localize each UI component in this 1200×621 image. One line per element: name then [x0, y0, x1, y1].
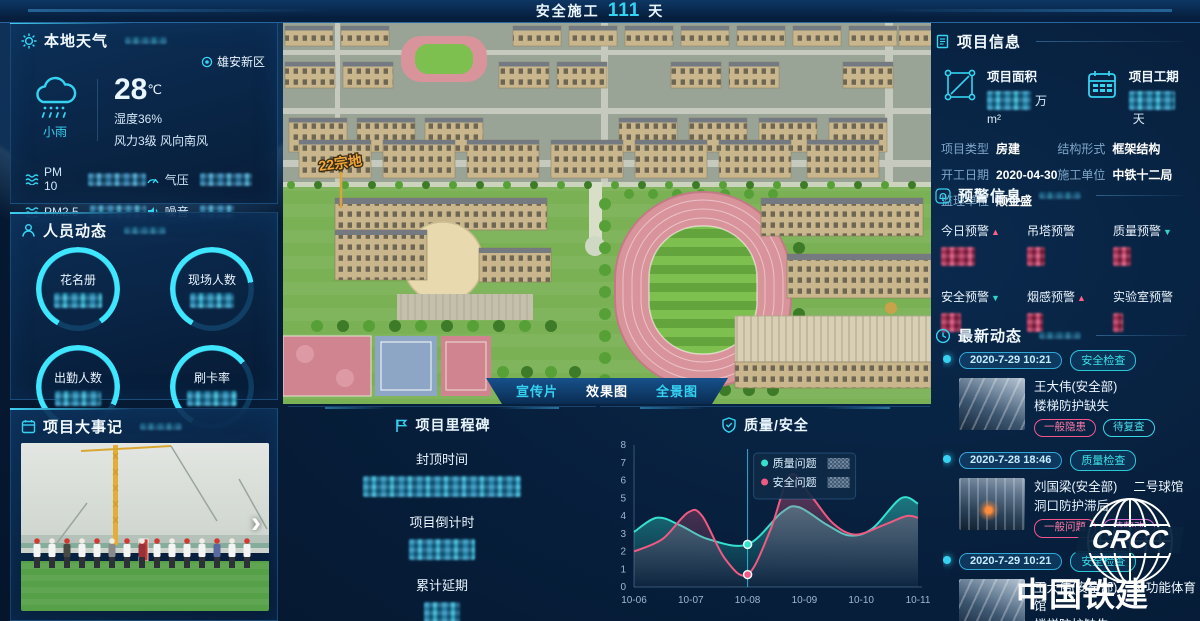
activity-photo[interactable]: [959, 478, 1025, 530]
header-decoration: [124, 227, 166, 234]
activity-title: 最新动态: [958, 325, 1022, 346]
activity-item[interactable]: 2020-7-28 18:46 质量检查 刘国梁(安全部)二号球馆 洞口防护滞后…: [943, 450, 1197, 537]
flag-icon: [394, 418, 409, 433]
svg-text:10-10: 10-10: [848, 595, 874, 606]
activity-time: 2020-7-28 18:46: [959, 452, 1062, 469]
milestone-items: 封顶时间 项目倒计时 累计延期: [288, 449, 596, 621]
site-3d-view: 22宗地 宣传片 效果图 全景图: [283, 22, 931, 404]
svg-text:1: 1: [620, 564, 626, 575]
header-decoration: [1039, 332, 1081, 339]
project-info-panel: 项目信息 项目面积 万m² 项目工期 天: [935, 24, 1193, 176]
timeline-dot: [943, 455, 951, 463]
carousel-next-button[interactable]: ›: [251, 513, 261, 533]
issue-status-badge: 待复查: [1103, 419, 1155, 438]
issue-status-badge: 待整改: [1103, 519, 1155, 538]
svg-text:2: 2: [620, 547, 626, 558]
header-days-count: 111: [608, 0, 641, 22]
svg-text:5: 5: [620, 493, 626, 504]
censored-value: [54, 293, 102, 308]
location-pin-icon: [201, 56, 213, 68]
weather-condition: 小雨: [43, 123, 67, 140]
activity-type-badge: 安全检查: [1070, 551, 1136, 572]
stat-area: 项目面积 万m²: [941, 66, 1057, 128]
svg-text:10-11: 10-11: [906, 595, 930, 606]
quality-safety-panel: 质量/安全 01234567810-0610-0710-0810-0910-10…: [600, 406, 930, 621]
censored-value: [987, 91, 1031, 110]
shield-check-icon: [721, 417, 737, 433]
svg-text:10-06: 10-06: [621, 595, 647, 606]
header-title-prefix: 安全施工: [536, 1, 600, 21]
personnel-title: 人员动态: [43, 220, 107, 241]
censored-value: [1113, 247, 1131, 266]
humidity: 湿度36%: [114, 110, 208, 127]
svg-text:7: 7: [620, 458, 626, 469]
weather-current: 小雨 28℃ 湿度36% 风力3级 风向南风: [29, 75, 208, 149]
warning-quality: 质量预警▼: [1113, 222, 1199, 266]
warnings-panel: 预警信息 今日预警▲ 吊塔预警 质量预警▼ 安全预警▼ 烟感预警▲ 实验室预警: [935, 178, 1193, 314]
svg-text:4: 4: [620, 511, 626, 522]
censored-value: [1129, 91, 1175, 110]
metric-label: PM 10: [44, 165, 77, 193]
censored-value: [187, 391, 237, 406]
view-button-panorama[interactable]: 全景图: [656, 381, 698, 400]
issue-level-badge: 一般隐患: [1034, 419, 1096, 438]
warnings-grid: 今日预警▲ 吊塔预警 质量预警▼ 安全预警▼ 烟感预警▲ 实验室预警: [935, 210, 1193, 332]
censored-value: [1027, 247, 1045, 266]
activity-time: 2020-7-29 10:21: [959, 553, 1062, 570]
censored-value: [409, 539, 475, 560]
censored-value: [55, 391, 101, 406]
events-photo[interactable]: [21, 443, 269, 611]
svg-text:8: 8: [620, 440, 626, 451]
dashboard-root: 安全施工 111 天 本地天气 雄安新区: [0, 0, 1200, 621]
person-icon: [21, 223, 36, 238]
events-panel: 项目大事记: [10, 408, 278, 621]
activity-type-badge: 安全检查: [1070, 350, 1136, 371]
activity-list: 2020-7-29 10:21 安全检查 王大伟(安全部) 楼梯防护缺失 一般隐…: [943, 350, 1197, 621]
ring-roster: 花名册: [36, 247, 120, 331]
censored-value: [200, 173, 252, 186]
svg-text:0: 0: [620, 582, 626, 593]
weather-location: 雄安新区: [201, 53, 265, 70]
bell-icon: [935, 188, 951, 204]
timeline-dot: [943, 556, 951, 564]
gear-icon: [21, 33, 37, 49]
issue-level-badge: 一般问题: [1034, 519, 1096, 538]
area-icon: [941, 66, 979, 104]
rain-cloud-icon: [29, 75, 81, 121]
warning-today: 今日预警▲: [941, 222, 1027, 266]
warning-crane: 吊塔预警: [1027, 222, 1113, 266]
weather-panel: 本地天气 雄安新区 小雨 28℃: [10, 22, 278, 204]
project-stats: 项目面积 万m² 项目工期 天: [935, 56, 1193, 130]
chart-title: 质量/安全: [744, 415, 809, 435]
header-decoration: [125, 37, 167, 44]
calendar-icon: [21, 419, 36, 434]
svg-text:3: 3: [620, 529, 626, 540]
top-header: 安全施工 111 天: [0, 0, 1200, 23]
view-button-render[interactable]: 效果图: [586, 381, 628, 400]
svg-text:10-09: 10-09: [792, 595, 818, 606]
activity-photo[interactable]: [959, 579, 1025, 621]
censored-value: [88, 173, 146, 186]
calendar-icon: [1083, 66, 1121, 104]
activity-item[interactable]: 2020-7-29 10:21 安全检查 王大伟(安全部)多功能体育馆 楼梯防护…: [943, 551, 1197, 621]
censored-value: [424, 602, 460, 621]
timeline-dot: [943, 355, 951, 363]
personnel-rings: 花名册 现场人数 出勤人数 刷卡率: [11, 247, 279, 429]
svg-text:质量问题: 质量问题: [773, 457, 817, 470]
weather-title: 本地天气: [44, 30, 108, 51]
quality-safety-chart[interactable]: 01234567810-0610-0710-0810-0910-1010-11质…: [600, 435, 930, 620]
censored-value: [941, 247, 975, 266]
stat-duration: 项目工期 天: [1083, 66, 1187, 128]
divider: [97, 79, 98, 141]
ring-onsite: 现场人数: [170, 247, 254, 331]
activity-item[interactable]: 2020-7-29 10:21 安全检查 王大伟(安全部) 楼梯防护缺失 一般隐…: [943, 350, 1197, 437]
milestone-panel: 项目里程碑 封顶时间 项目倒计时 累计延期: [288, 406, 596, 621]
activity-panel: 最新动态 2020-7-29 10:21 安全检查 王大伟(安全部) 楼梯防护缺…: [935, 318, 1197, 621]
svg-text:10-08: 10-08: [735, 595, 761, 606]
field-project-type: 项目类型房建: [941, 140, 1057, 157]
censored-value: [190, 293, 234, 308]
activity-photo[interactable]: [959, 378, 1025, 430]
view-button-promo[interactable]: 宣传片: [516, 381, 558, 400]
wind: 风力3级 风向南风: [114, 132, 208, 149]
pressure-gauge-icon: [146, 173, 160, 185]
milestone-title: 项目里程碑: [416, 415, 491, 435]
field-structure: 结构形式框架结构: [1057, 140, 1187, 157]
censored-value: [363, 476, 521, 497]
warnings-title: 预警信息: [958, 185, 1022, 206]
metric-label: 气压: [165, 171, 189, 188]
activity-type-badge: 质量检查: [1070, 450, 1136, 471]
pm10-mist-icon: [25, 173, 39, 185]
header-decoration: [1039, 192, 1081, 199]
milestone-delay: 累计延期: [416, 575, 468, 621]
clock-icon: [935, 328, 951, 344]
svg-text:10-07: 10-07: [678, 595, 704, 606]
events-title: 项目大事记: [43, 416, 123, 437]
personnel-panel: 人员动态 花名册 现场人数 出勤人数 刷卡率: [10, 212, 278, 400]
header-title-suffix: 天: [648, 1, 664, 21]
header-decoration: [140, 423, 182, 430]
milestone-countdown: 项目倒计时: [409, 512, 475, 560]
svg-text:6: 6: [620, 476, 626, 487]
activity-time: 2020-7-29 10:21: [959, 352, 1062, 369]
scene-view-switcher: 宣传片 效果图 全景图: [486, 378, 728, 404]
svg-text:安全问题: 安全问题: [773, 475, 817, 489]
temperature: 28℃: [114, 75, 208, 105]
milestone-topping-time: 封顶时间: [363, 449, 521, 497]
project-info-title: 项目信息: [957, 31, 1021, 52]
site-render: 22宗地: [283, 22, 931, 404]
document-icon: [935, 34, 950, 49]
